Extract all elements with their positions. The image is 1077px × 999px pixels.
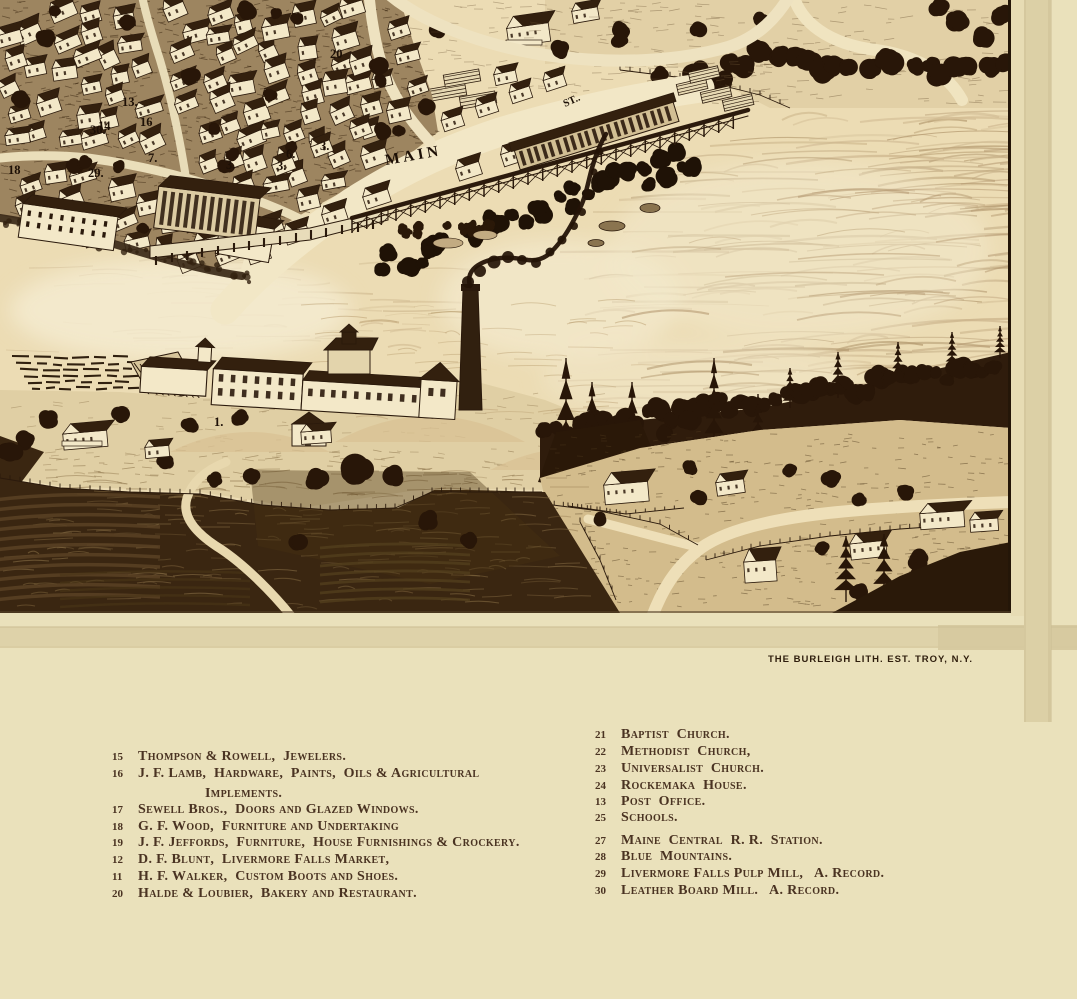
svg-text:3.: 3.: [226, 158, 235, 172]
svg-text:1.: 1.: [214, 415, 223, 429]
svg-text:3.: 3.: [277, 159, 286, 173]
svg-text:6.: 6.: [286, 147, 295, 161]
svg-text:13.: 13.: [122, 95, 138, 109]
svg-text:7.: 7.: [148, 151, 157, 165]
svg-text:29.: 29.: [88, 166, 104, 180]
svg-text:3.: 3.: [320, 139, 329, 153]
svg-text:30.: 30.: [90, 123, 106, 137]
svg-text:18: 18: [8, 163, 21, 177]
svg-text:16: 16: [140, 115, 153, 129]
svg-text:20: 20: [330, 47, 343, 61]
